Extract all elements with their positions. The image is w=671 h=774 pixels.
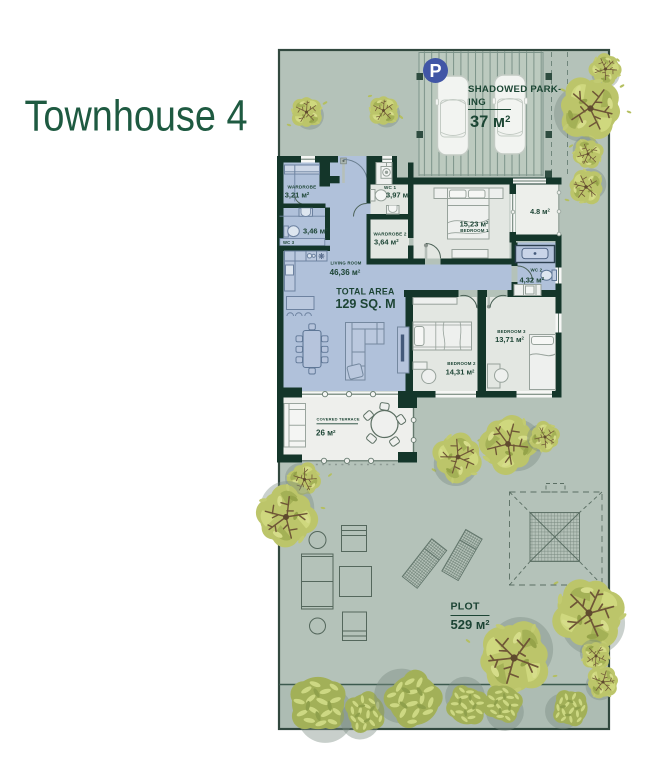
svg-text:129 SQ. M: 129 SQ. M	[335, 297, 395, 311]
svg-text:COVERED TERRACE: COVERED TERRACE	[317, 417, 360, 422]
svg-text:BEDROOM 3: BEDROOM 3	[497, 329, 526, 334]
svg-text:PLOT: PLOT	[451, 601, 480, 613]
svg-text:3,64 м2: 3,64 м2	[374, 237, 399, 246]
svg-text:4,32 м2: 4,32 м2	[520, 275, 545, 284]
svg-text:46,36 м2: 46,36 м2	[330, 268, 361, 277]
svg-text:13,71 м2: 13,71 м2	[495, 335, 524, 344]
svg-text:ING: ING	[468, 97, 486, 108]
svg-text:3,21 м2: 3,21 м2	[285, 191, 310, 200]
svg-text:TOTAL AREA: TOTAL AREA	[336, 287, 395, 297]
svg-text:LIVING ROOM: LIVING ROOM	[330, 261, 361, 266]
svg-text:WC 1: WC 1	[384, 185, 397, 190]
svg-text:P: P	[429, 61, 441, 81]
svg-text:WARDROBE: WARDROBE	[288, 185, 317, 190]
svg-text:3,97 м2: 3,97 м2	[386, 190, 411, 199]
svg-text:529 м2: 529 м2	[451, 617, 490, 632]
svg-text:15,23 м2: 15,23 м2	[460, 219, 489, 228]
svg-text:WC 2: WC 2	[531, 267, 543, 272]
svg-text:37 м2: 37 м2	[470, 113, 510, 131]
svg-text:BEDROOM 2: BEDROOM 2	[447, 361, 476, 366]
svg-text:4.8 м2: 4.8 м2	[530, 207, 550, 216]
svg-text:3,46 м2: 3,46 м2	[303, 227, 328, 236]
svg-text:❋: ❋	[318, 252, 325, 261]
svg-text:SHADOWED PARK-: SHADOWED PARK-	[468, 84, 562, 95]
svg-text:BEDROOM 1: BEDROOM 1	[460, 228, 489, 233]
svg-text:26 м2: 26 м2	[316, 429, 336, 438]
svg-text:WC 3: WC 3	[283, 240, 295, 245]
svg-text:Townhouse 4: Townhouse 4	[25, 91, 248, 140]
svg-text:14,31 м2: 14,31 м2	[446, 368, 475, 377]
svg-text:WARDROBE 2: WARDROBE 2	[374, 231, 407, 236]
